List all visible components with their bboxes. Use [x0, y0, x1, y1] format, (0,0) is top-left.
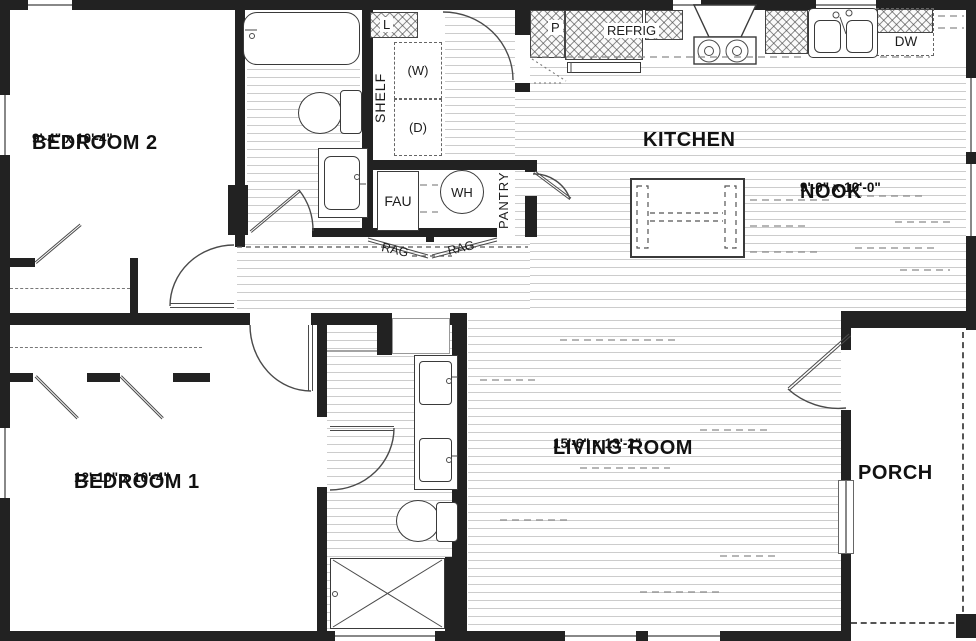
linen-text: L — [380, 17, 393, 32]
washer-label: (W) — [394, 63, 442, 78]
refrigerator-text: REFRIG — [604, 23, 659, 38]
bedroom2-dims: 9'-4" x 10'-4" — [32, 131, 113, 148]
porch-name: PORCH — [858, 461, 933, 486]
shelf-label: SHELF — [372, 66, 392, 130]
pantry-cabinet-text: P — [548, 20, 563, 35]
bedroom1-dims: 12'-10" x 10'-4" — [74, 470, 170, 487]
linework-overlay — [0, 0, 976, 641]
floor-plan: BEDROOM 2 9'-4" x 10'-4" BEDROOM 1 12'-1… — [0, 0, 976, 641]
living-dims: 15'-6" x 13'-2" — [553, 436, 641, 453]
pantry-label: PANTRY — [496, 164, 518, 236]
fau-label: FAU — [377, 193, 419, 209]
dishwasher-label: DW — [884, 34, 928, 49]
water-heater-label: WH — [440, 185, 484, 200]
nook-dims: 9'-0" x 10'-0" — [800, 180, 881, 197]
dryer-label: (D) — [394, 120, 442, 135]
kitchen-name: KITCHEN — [643, 128, 735, 153]
